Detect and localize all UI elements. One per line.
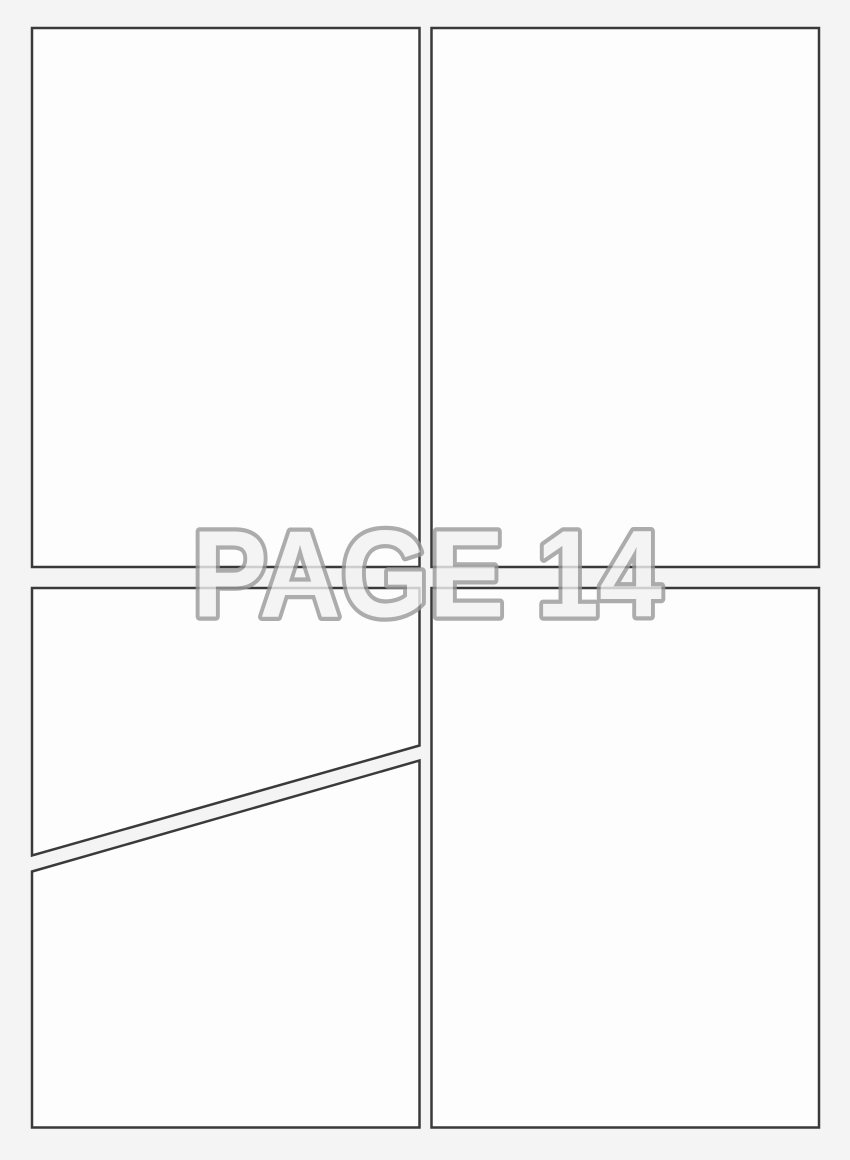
panel-top-left — [32, 28, 420, 567]
panel-top-right — [432, 28, 820, 567]
panel-bottom-right — [432, 588, 820, 1128]
comic-page-canvas: PAGE 14 — [0, 0, 850, 1160]
comic-page-template: PAGE 14 — [0, 0, 850, 1160]
page-number-label: PAGE 14 — [192, 507, 662, 644]
